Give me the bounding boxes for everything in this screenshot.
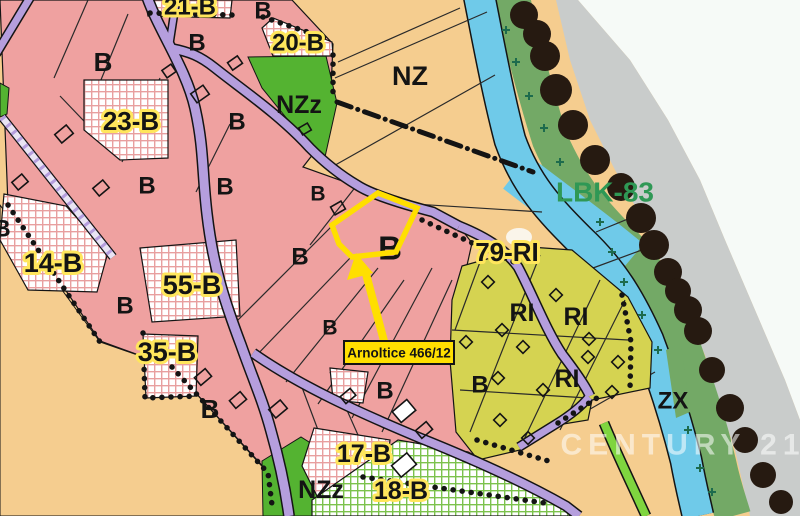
zone-label-b-5: B: [138, 173, 155, 200]
zone-label-b-8: B: [291, 244, 308, 271]
zone-label-b-7: B: [310, 183, 325, 206]
zoning-map: 21-B 20-B 23-B 14-B 55-B 35-B 17-B 18-B …: [0, 0, 800, 516]
zone-label-55-b: 55-B: [163, 270, 222, 300]
zone-label-b-1: B: [94, 47, 113, 77]
parcel-label: Arnoltice 466/12: [344, 341, 454, 364]
biocorridor-label-lbk-83: LBK-83: [556, 177, 654, 208]
zone-label-b-9: B: [0, 216, 11, 243]
zone-label-ri-2: RI: [564, 303, 589, 331]
zone-label-21-b: 21-B: [164, 0, 216, 21]
zone-label-b-15: B: [201, 394, 220, 424]
century21-watermark: CENTURY 21: [560, 429, 800, 462]
zone-label-nzz-bottom: NZz: [298, 476, 344, 504]
zone-label-ri-3: RI: [555, 365, 580, 393]
zone-label-17-b: 17-B: [337, 440, 391, 468]
zone-label-b-13: B: [471, 372, 488, 399]
zone-label-b-3: B: [254, 0, 271, 25]
zone-label-b-6: B: [216, 174, 233, 201]
zone-label-79-ri: 79-RI: [475, 237, 539, 267]
zone-label-b-11: B: [322, 317, 337, 340]
zone-label-20-b: 20-B: [272, 30, 324, 57]
zone-label-14-b: 14-B: [24, 248, 83, 278]
zone-label-nz: NZ: [392, 61, 428, 91]
zone-label-nzz-top: NZz: [276, 91, 322, 119]
green-sliver-left: [0, 83, 9, 117]
zone-label-zx: ZX: [658, 388, 689, 415]
zoning-map-canvas: 21-B 20-B 23-B 14-B 55-B 35-B 17-B 18-B …: [0, 0, 800, 516]
zone-label-35-b: 35-B: [138, 337, 197, 367]
zone-label-23-b: 23-B: [103, 106, 159, 136]
parcel-label-text: Arnoltice 466/12: [347, 346, 451, 361]
zone-label-b-4: B: [228, 109, 245, 136]
zone-label-b-12: B: [376, 378, 393, 405]
zone-label-18-b: 18-B: [374, 477, 428, 505]
zone-label-b-2: B: [188, 30, 205, 57]
zone-label-ri-1: RI: [510, 299, 535, 327]
zone-label-b-10: B: [116, 293, 133, 320]
